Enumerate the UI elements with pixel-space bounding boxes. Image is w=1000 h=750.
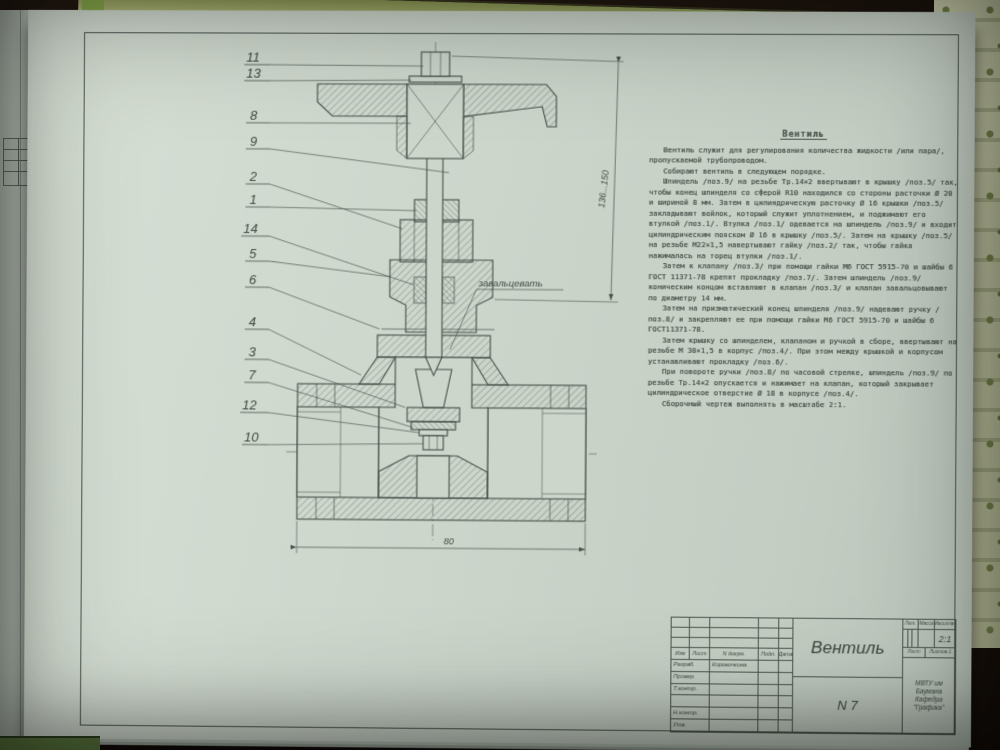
revision-grid <box>672 618 793 649</box>
scale-label: Масштаб <box>935 620 955 630</box>
col-podp: Подп. <box>759 649 779 661</box>
handle-assembly <box>317 52 557 159</box>
col-izm: Изм <box>671 648 689 660</box>
row-label: Утв. <box>671 719 710 731</box>
sheets-label: Листов 1 <box>926 648 956 658</box>
row-label: Провер. <box>671 672 710 684</box>
description-paragraph: Вентиль служит для регулирования количес… <box>649 145 958 167</box>
part-callout: 13 <box>246 66 261 81</box>
row-label: Разраб. <box>671 660 710 672</box>
description-paragraph: Затем к клапану /поз.3/ при помощи гайки… <box>648 261 957 305</box>
part-callout: 3 <box>249 344 257 359</box>
description-paragraph: Затем на призматический конец шпинделя /… <box>648 303 957 336</box>
valve-assembly-drawing: 11 13 8 9 2 1 14 5 6 4 3 7 12 10 завальц… <box>207 37 654 587</box>
lit-mass-scale-values: 2:1 <box>903 630 955 649</box>
mass-label: Масса <box>919 620 935 630</box>
part-callout: 7 <box>248 367 256 382</box>
part-callout: 10 <box>244 429 259 444</box>
scale-value: 2:1 <box>935 630 956 648</box>
title-block: Изм Лист N докум. Подп. Дата Разраб. Кор… <box>670 617 956 736</box>
col-ndoc: N докум. <box>710 648 759 661</box>
description-paragraph: Шпиндель /поз.9/ на резьбе Тр.14×2 вверт… <box>649 176 958 262</box>
lit-label: Лит. <box>903 620 918 630</box>
dim-length-text: 80 <box>444 536 454 546</box>
organization: МВТУ им Баумана Кафедра "Графика" <box>903 658 955 734</box>
signature-rows: Разраб. Коровочкина Провер. Т.контр. Н.к… <box>671 660 792 733</box>
sheet-counts: Лист Листов 1 <box>903 648 955 659</box>
crimp-note: завальцевать <box>478 278 543 289</box>
lit-mass-scale-header: Лит. Масса Масштаб <box>903 620 955 631</box>
col-list: Лист <box>690 648 710 660</box>
sheet-label: Лист <box>903 648 925 658</box>
row-label: Н.контр. <box>671 708 710 720</box>
part-callout: 4 <box>249 314 256 329</box>
description-paragraph: Затем крышку со шпинделем, клапаном и ру… <box>648 335 957 369</box>
drawing-sheet: 11 13 8 9 2 1 14 5 6 4 3 7 12 10 завальц… <box>24 10 976 747</box>
description-paragraph: При повороте ручки /поз.8/ по часовой ст… <box>648 367 957 401</box>
part-callout: 8 <box>250 108 258 123</box>
part-callout: 1 <box>249 192 256 207</box>
part-callout: 11 <box>246 50 260 65</box>
part-callout: 2 <box>249 169 258 184</box>
part-callout: 6 <box>249 272 257 287</box>
revision-header-row: Изм Лист N докум. Подп. Дата <box>671 648 792 661</box>
part-callout: 5 <box>249 246 257 261</box>
description-title: Вентиль <box>649 128 958 140</box>
col-data: Дата <box>779 649 792 661</box>
page-crease <box>20 10 21 746</box>
document-title: Вентиль <box>793 619 902 678</box>
part-callout: 14 <box>243 221 258 236</box>
dimension-length: 80 <box>297 521 586 555</box>
row-label: Т.контр. <box>671 684 710 696</box>
part-callout: 12 <box>242 397 257 412</box>
part-callout: 9 <box>250 134 257 149</box>
org-line-1: МВТУ им Баумана <box>903 680 955 697</box>
description-paragraph: Сборочный чертеж выполнять в масштабе 2:… <box>648 398 957 411</box>
assembly-description: Вентиль Вентиль служит для регулирования… <box>648 128 959 411</box>
org-line-2: Кафедра "Графика" <box>903 696 955 713</box>
dim-height-text: 136...150 <box>596 170 610 209</box>
stem <box>426 142 444 375</box>
document-number: N 7 <box>793 677 902 734</box>
album-cover-corner <box>0 736 100 750</box>
row-value: Коровочкина <box>710 660 759 672</box>
